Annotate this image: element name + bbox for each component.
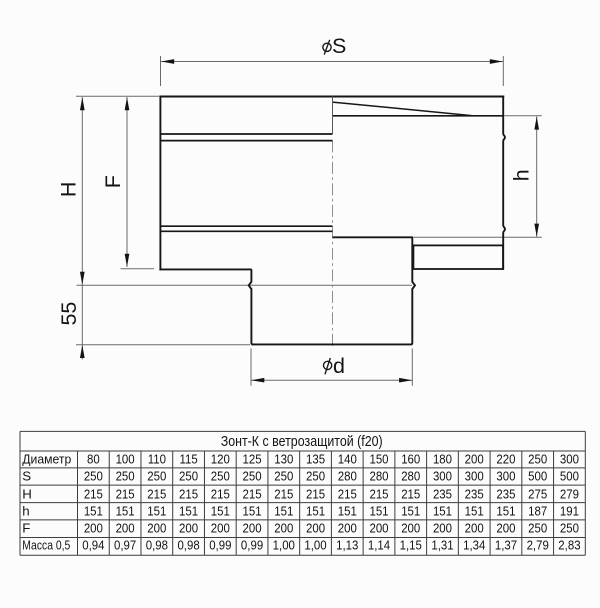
svg-text:151: 151: [496, 504, 515, 519]
svg-text:200: 200: [465, 521, 484, 536]
svg-text:300: 300: [433, 469, 452, 484]
svg-text:275: 275: [528, 487, 547, 502]
svg-text:250: 250: [306, 469, 325, 484]
svg-text:200: 200: [211, 521, 230, 536]
svg-text:d: d: [333, 354, 345, 378]
svg-text:215: 215: [401, 487, 420, 502]
svg-text:215: 215: [179, 487, 198, 502]
svg-text:215: 215: [116, 487, 135, 502]
svg-text:200: 200: [306, 521, 325, 536]
svg-text:1,37: 1,37: [495, 538, 517, 553]
svg-text:Зонт-К с ветрозащитой (f20): Зонт-К с ветрозащитой (f20): [221, 434, 383, 450]
svg-text:Масса 0,5: Масса 0,5: [22, 538, 70, 553]
svg-text:H: H: [56, 182, 80, 198]
svg-text:200: 200: [116, 521, 135, 536]
svg-text:130: 130: [274, 452, 293, 467]
svg-text:250: 250: [528, 452, 547, 467]
svg-text:0,94: 0,94: [82, 538, 104, 553]
svg-text:55: 55: [57, 302, 81, 326]
svg-text:1,14: 1,14: [368, 538, 390, 553]
svg-text:F: F: [22, 521, 30, 536]
svg-text:180: 180: [433, 452, 452, 467]
svg-text:191: 191: [560, 504, 579, 519]
svg-text:160: 160: [401, 452, 420, 467]
svg-text:200: 200: [179, 521, 198, 536]
svg-text:151: 151: [147, 504, 166, 519]
svg-text:279: 279: [560, 487, 579, 502]
svg-text:150: 150: [369, 452, 388, 467]
svg-text:100: 100: [116, 452, 135, 467]
svg-text:151: 151: [211, 504, 230, 519]
svg-text:1,31: 1,31: [431, 538, 453, 553]
svg-text:280: 280: [338, 469, 357, 484]
svg-text:151: 151: [465, 504, 484, 519]
svg-text:250: 250: [528, 521, 547, 536]
svg-text:1,00: 1,00: [304, 538, 326, 553]
svg-text:110: 110: [148, 452, 166, 467]
svg-text:F: F: [101, 175, 125, 188]
svg-text:235: 235: [496, 487, 515, 502]
svg-text:80: 80: [87, 452, 100, 467]
svg-text:151: 151: [306, 504, 325, 519]
svg-text:151: 151: [116, 504, 135, 519]
svg-text:200: 200: [84, 521, 103, 536]
svg-text:1,34: 1,34: [463, 538, 485, 553]
svg-text:220: 220: [496, 452, 515, 467]
svg-text:235: 235: [465, 487, 484, 502]
svg-text:215: 215: [147, 487, 166, 502]
svg-text:Диаметр: Диаметр: [22, 451, 71, 466]
svg-text:250: 250: [116, 469, 135, 484]
svg-text:115: 115: [179, 452, 197, 467]
svg-text:187: 187: [528, 504, 547, 519]
svg-text:200: 200: [274, 521, 293, 536]
svg-text:151: 151: [369, 504, 388, 519]
svg-text:215: 215: [274, 487, 293, 502]
svg-text:250: 250: [243, 469, 262, 484]
svg-text:S: S: [332, 34, 346, 58]
svg-text:200: 200: [401, 521, 420, 536]
svg-text:0,97: 0,97: [114, 538, 136, 553]
svg-text:0,99: 0,99: [241, 538, 263, 553]
svg-text:151: 151: [338, 504, 357, 519]
svg-text:200: 200: [369, 521, 388, 536]
svg-text:500: 500: [528, 469, 547, 484]
svg-text:140: 140: [338, 452, 357, 467]
svg-text:0,98: 0,98: [146, 538, 168, 553]
svg-text:250: 250: [179, 469, 198, 484]
svg-text:250: 250: [274, 469, 293, 484]
svg-text:500: 500: [560, 469, 579, 484]
svg-text:200: 200: [496, 521, 515, 536]
svg-text:300: 300: [496, 469, 515, 484]
svg-text:151: 151: [243, 504, 262, 519]
svg-text:H: H: [22, 486, 32, 501]
svg-text:S: S: [22, 469, 31, 484]
svg-text:151: 151: [84, 504, 103, 519]
svg-text:215: 215: [211, 487, 230, 502]
svg-text:h: h: [22, 503, 29, 518]
svg-text:250: 250: [147, 469, 166, 484]
svg-text:2,79: 2,79: [527, 538, 549, 553]
svg-text:1,13: 1,13: [336, 538, 358, 553]
svg-text:151: 151: [274, 504, 293, 519]
svg-text:250: 250: [211, 469, 230, 484]
svg-text:125: 125: [243, 452, 262, 467]
svg-text:200: 200: [465, 452, 484, 467]
svg-text:280: 280: [401, 469, 420, 484]
svg-text:300: 300: [560, 452, 579, 467]
svg-text:215: 215: [338, 487, 357, 502]
svg-text:215: 215: [84, 487, 103, 502]
svg-text:120: 120: [211, 452, 230, 467]
svg-text:135: 135: [306, 452, 325, 467]
svg-text:280: 280: [369, 469, 388, 484]
svg-text:151: 151: [433, 504, 452, 519]
svg-text:151: 151: [179, 504, 198, 519]
svg-text:215: 215: [306, 487, 325, 502]
svg-text:0,99: 0,99: [209, 538, 231, 553]
svg-text:200: 200: [243, 521, 262, 536]
svg-text:h: h: [510, 169, 534, 181]
svg-text:0,98: 0,98: [177, 538, 199, 553]
svg-text:215: 215: [243, 487, 262, 502]
svg-text:200: 200: [147, 521, 166, 536]
svg-text:300: 300: [465, 469, 484, 484]
svg-text:1,15: 1,15: [400, 538, 422, 553]
svg-text:200: 200: [338, 521, 357, 536]
svg-text:215: 215: [369, 487, 388, 502]
svg-text:250: 250: [84, 469, 103, 484]
svg-text:250: 250: [560, 521, 579, 536]
svg-text:200: 200: [433, 521, 452, 536]
svg-text:2,83: 2,83: [558, 538, 580, 553]
svg-text:151: 151: [401, 504, 420, 519]
svg-text:1,00: 1,00: [273, 538, 295, 553]
svg-text:235: 235: [433, 487, 452, 502]
